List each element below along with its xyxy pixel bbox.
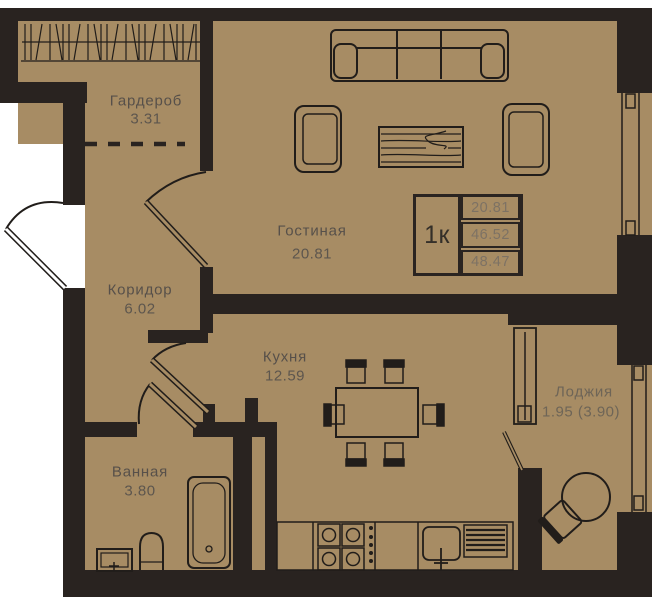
dining-table-icon (336, 388, 418, 437)
room-label-wardrobe: Гардероб (110, 93, 182, 110)
area-without-loggia-value: 46.52 (461, 222, 520, 247)
apartment-info-box: 1к 20.81 46.52 48.47 (413, 194, 523, 276)
room-label-kitchen: Кухня (263, 349, 307, 366)
floor-plan: Гардероб 3.31 Коридор 6.02 Гостиная 20.8… (0, 0, 652, 603)
room-label-living: Гостиная (277, 223, 346, 240)
living-area-value: 20.81 (461, 197, 520, 220)
floor-plan-drawing (0, 0, 652, 603)
coffee-table-icon (379, 127, 463, 167)
entrance-door-icon (6, 202, 65, 288)
room-label-loggia: Лоджия (555, 384, 613, 401)
unit-type-label: 1к (416, 197, 461, 273)
room-label-bathroom: Ванная (112, 464, 168, 481)
room-area-kitchen: 12.59 (265, 368, 305, 385)
total-area-value: 48.47 (461, 250, 520, 273)
room-area-corridor: 6.02 (124, 301, 155, 318)
area-values: 20.81 46.52 48.47 (461, 197, 520, 273)
room-area-bathroom: 3.80 (124, 483, 155, 500)
room-label-corridor: Коридор (108, 282, 173, 299)
room-area-living: 20.81 (292, 246, 332, 263)
room-area-wardrobe: 3.31 (130, 111, 161, 128)
room-area-loggia: 1.95 (3.90) (542, 404, 620, 421)
